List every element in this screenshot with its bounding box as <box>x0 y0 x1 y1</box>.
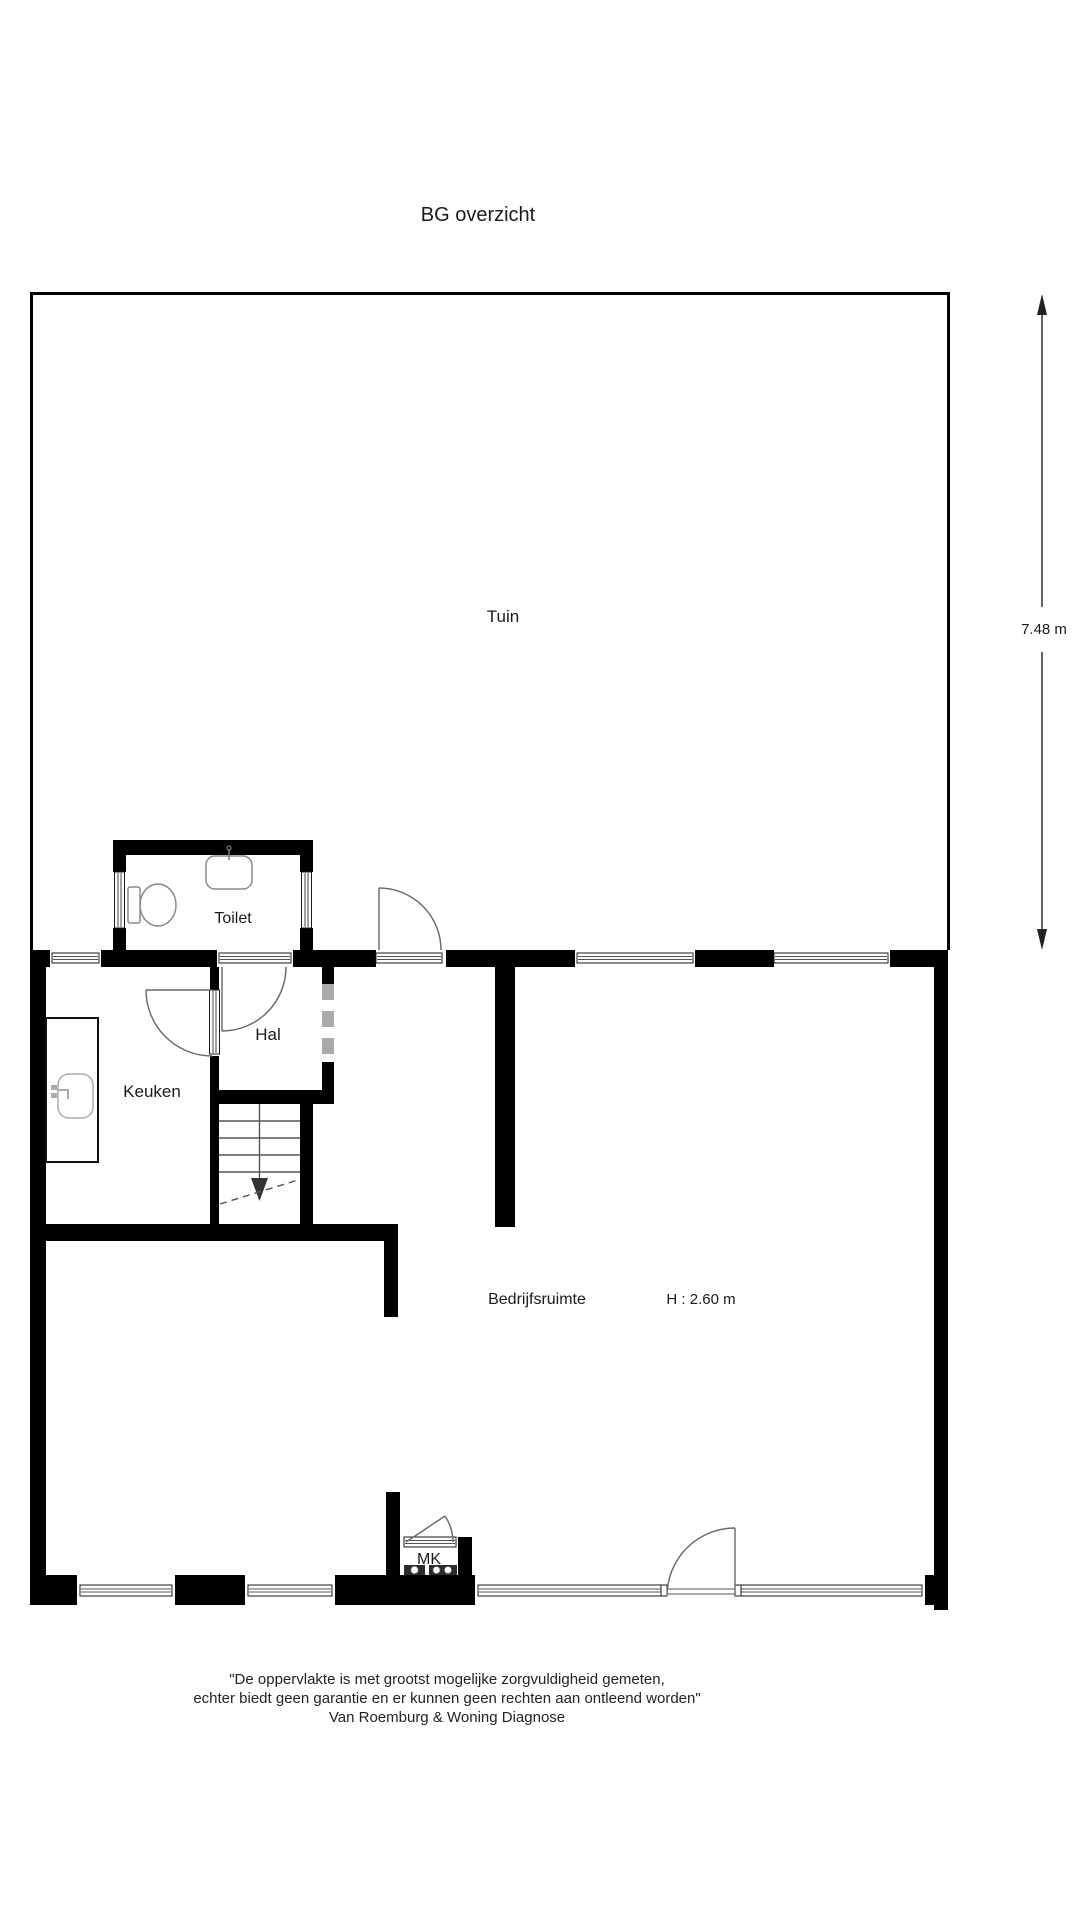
footer-disclaimer: "De oppervlakte is met grootst mogelijke… <box>193 1671 700 1726</box>
room-label-bedrijfsruimte: Bedrijfsruimte <box>488 1291 586 1308</box>
window-toilet-left <box>115 872 125 928</box>
staircase <box>219 1104 300 1204</box>
threshold-hal-door <box>219 953 291 963</box>
disclaimer-line-1: "De oppervlakte is met grootst mogelijke… <box>229 1671 665 1688</box>
window-toilet-right <box>302 872 312 928</box>
bedrijfsruimte-door <box>667 1528 735 1596</box>
dimension-label: 7.48 m <box>1021 621 1067 638</box>
window-top-2 <box>577 953 693 963</box>
garden-entrance-door <box>379 888 441 950</box>
room-label-toilet: Toilet <box>214 910 252 927</box>
stair-down-arrow-icon <box>251 1178 268 1201</box>
kitchen-sink-icon <box>58 1074 93 1118</box>
window-bottom-1 <box>80 1585 172 1596</box>
disclaimer-line-2: echter biedt geen garantie en er kunnen … <box>193 1690 700 1707</box>
threshold-keuken-door <box>210 990 220 1054</box>
keuken-door <box>146 990 212 1056</box>
toilet-bowl-icon <box>140 884 176 926</box>
window-bottom-4 <box>740 1585 922 1596</box>
page-title: BG overzicht <box>421 204 536 226</box>
room-label-keuken: Keuken <box>123 1082 181 1101</box>
hal-door <box>222 967 286 1031</box>
window-bottom-2 <box>248 1585 332 1596</box>
room-label-hal: Hal <box>255 1025 281 1044</box>
window-top-3 <box>774 953 888 963</box>
toilet-tank-icon <box>128 887 140 923</box>
threshold-entrance-door <box>376 953 442 963</box>
bottom-door-frame <box>661 1585 741 1596</box>
floorplan-drawing: BG overzicht Tuin 7.48 m <box>0 0 1080 1920</box>
floorplan-page: BG overzicht Tuin 7.48 m <box>0 0 1080 1920</box>
kitchen-fixtures <box>46 1018 98 1162</box>
window-top-1 <box>52 953 99 963</box>
room-label-tuin: Tuin <box>487 607 519 626</box>
ceiling-height-label: H : 2.60 m <box>666 1291 735 1308</box>
washbasin-icon <box>206 856 252 889</box>
window-bottom-3 <box>478 1585 662 1596</box>
room-label-mk: MK <box>417 1551 441 1568</box>
disclaimer-line-3: Van Roemburg & Woning Diagnose <box>329 1709 565 1726</box>
doors <box>146 888 735 1596</box>
